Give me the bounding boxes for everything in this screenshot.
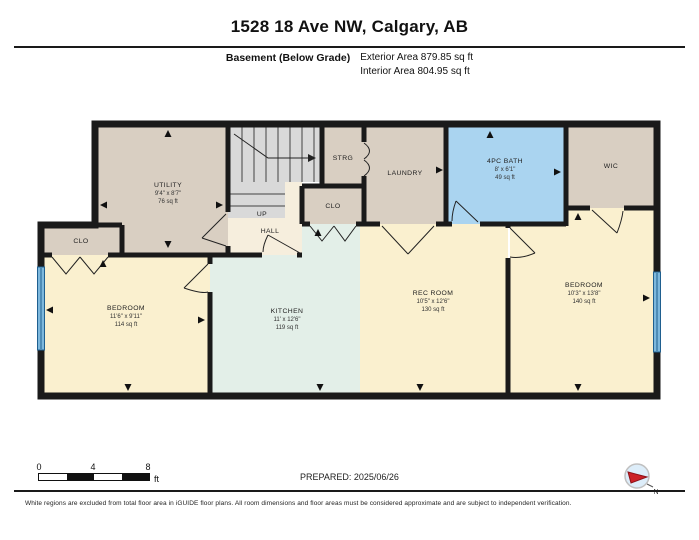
label-bath-area: 49 sq ft [495, 175, 515, 181]
label-utility: UTILITY [154, 182, 182, 189]
label-hall: HALL [261, 228, 280, 235]
label-clo-mid: CLO [325, 203, 340, 210]
label-strg: STRG [333, 155, 353, 162]
floor-plan-page: 1528 18 Ave NW, Calgary, AB Basement (Be… [0, 0, 699, 540]
label-bedroom-right: BEDROOM [565, 282, 603, 289]
label-bedroom-right-area: 140 sq ft [572, 299, 595, 305]
label-up: UP [257, 211, 267, 218]
label-bath: 4PC BATH [487, 158, 523, 165]
floor-plan-drawing: UTILITY 9'4" x 8'7" 76 sq ft STRG CLO LA… [0, 0, 699, 540]
label-utility-dims: 9'4" x 8'7" [155, 191, 181, 197]
label-bedroom-left: BEDROOM [107, 305, 145, 312]
label-clo-left: CLO [73, 238, 88, 245]
scale-tick-0: 0 [36, 462, 41, 472]
prepared-date: PREPARED: 2025/06/26 [0, 472, 699, 482]
scale-tick-8: 8 [145, 462, 150, 472]
label-kitchen: KITCHEN [271, 308, 304, 315]
footer-divider [14, 490, 685, 492]
scale-tick-4: 4 [90, 462, 95, 472]
label-rec-area: 130 sq ft [421, 307, 444, 313]
label-rec: REC ROOM [413, 290, 454, 297]
north-arrow-line [647, 484, 653, 487]
label-utility-area: 76 sq ft [158, 199, 178, 205]
label-rec-dims: 10'5" x 12'6" [417, 299, 450, 305]
label-laundry: LAUNDRY [387, 170, 422, 177]
label-bedroom-left-area: 114 sq ft [115, 322, 138, 328]
label-kitchen-area: 119 sq ft [276, 325, 299, 331]
label-bedroom-left-dims: 11'6" x 9'11" [110, 314, 142, 320]
label-bedroom-right-dims: 10'3" x 13'8" [568, 291, 601, 297]
label-bath-dims: 8' x 6'1" [495, 167, 516, 173]
label-wic: WIC [604, 163, 618, 170]
label-kitchen-dims: 11' x 12'6" [274, 317, 301, 323]
disclaimer-text: White regions are excluded from total fl… [25, 500, 675, 507]
